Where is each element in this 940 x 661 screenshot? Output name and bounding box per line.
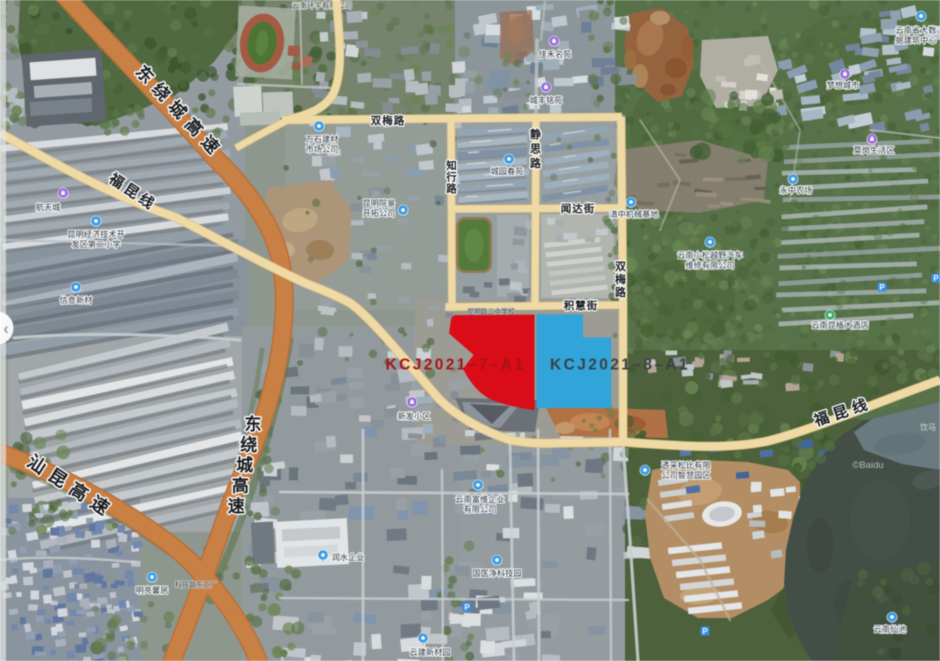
svg-text:饮马: 饮马 bbox=[920, 422, 936, 432]
svg-text:‹: ‹ bbox=[3, 319, 9, 338]
svg-text:©Baidu: ©Baidu bbox=[852, 460, 883, 471]
